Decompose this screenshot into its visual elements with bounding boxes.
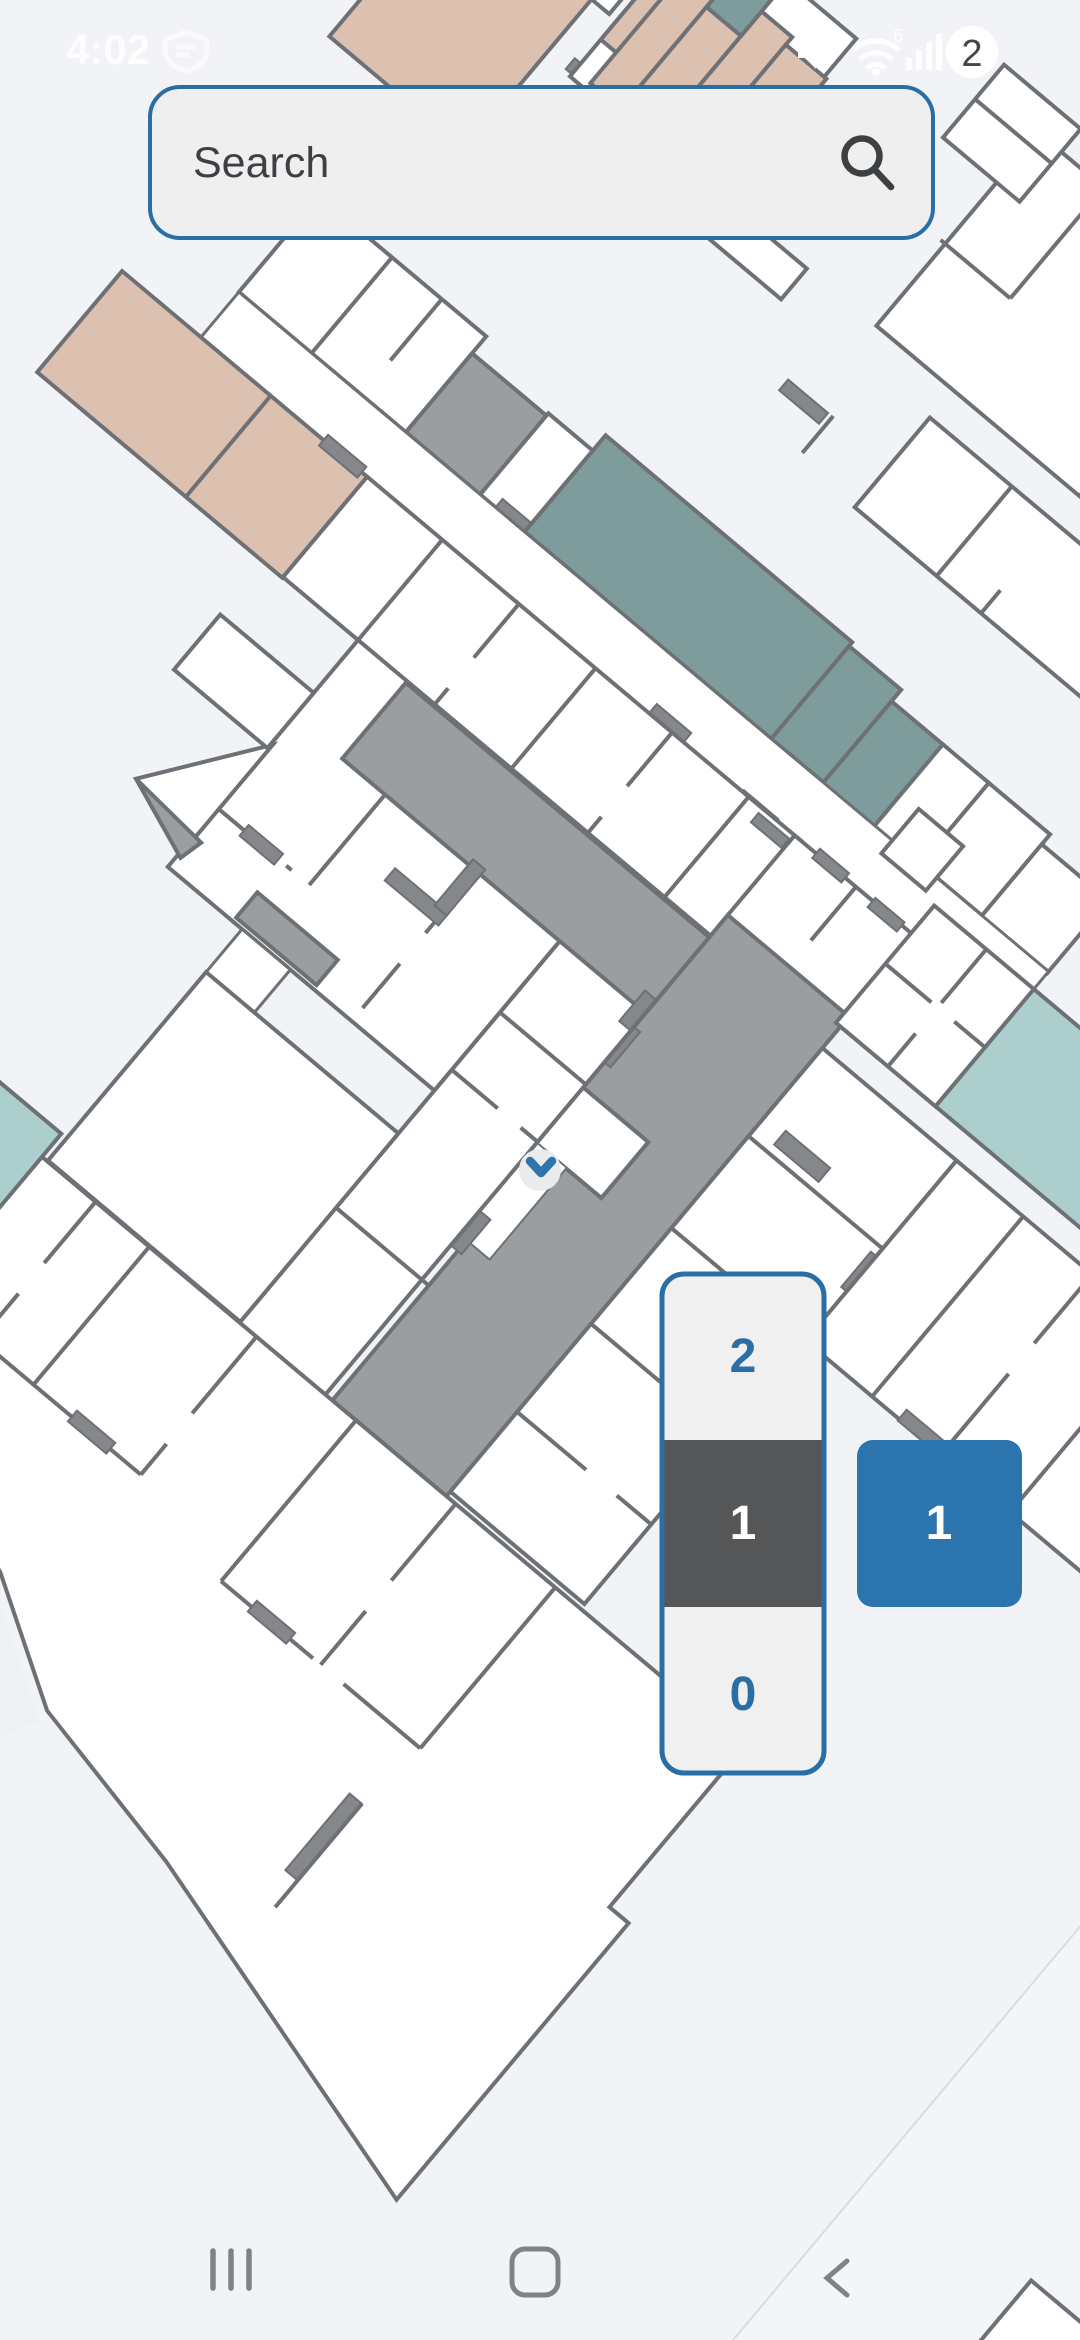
svg-text:0: 0 [730,1668,757,1721]
svg-text:2: 2 [961,33,982,75]
svg-text:4:02: 4:02 [66,26,150,73]
svg-text:2: 2 [730,1330,757,1383]
svg-text:1: 1 [926,1497,953,1550]
svg-text:1: 1 [730,1497,757,1550]
svg-text:Search: Search [193,139,329,187]
svg-text:6: 6 [893,26,904,47]
